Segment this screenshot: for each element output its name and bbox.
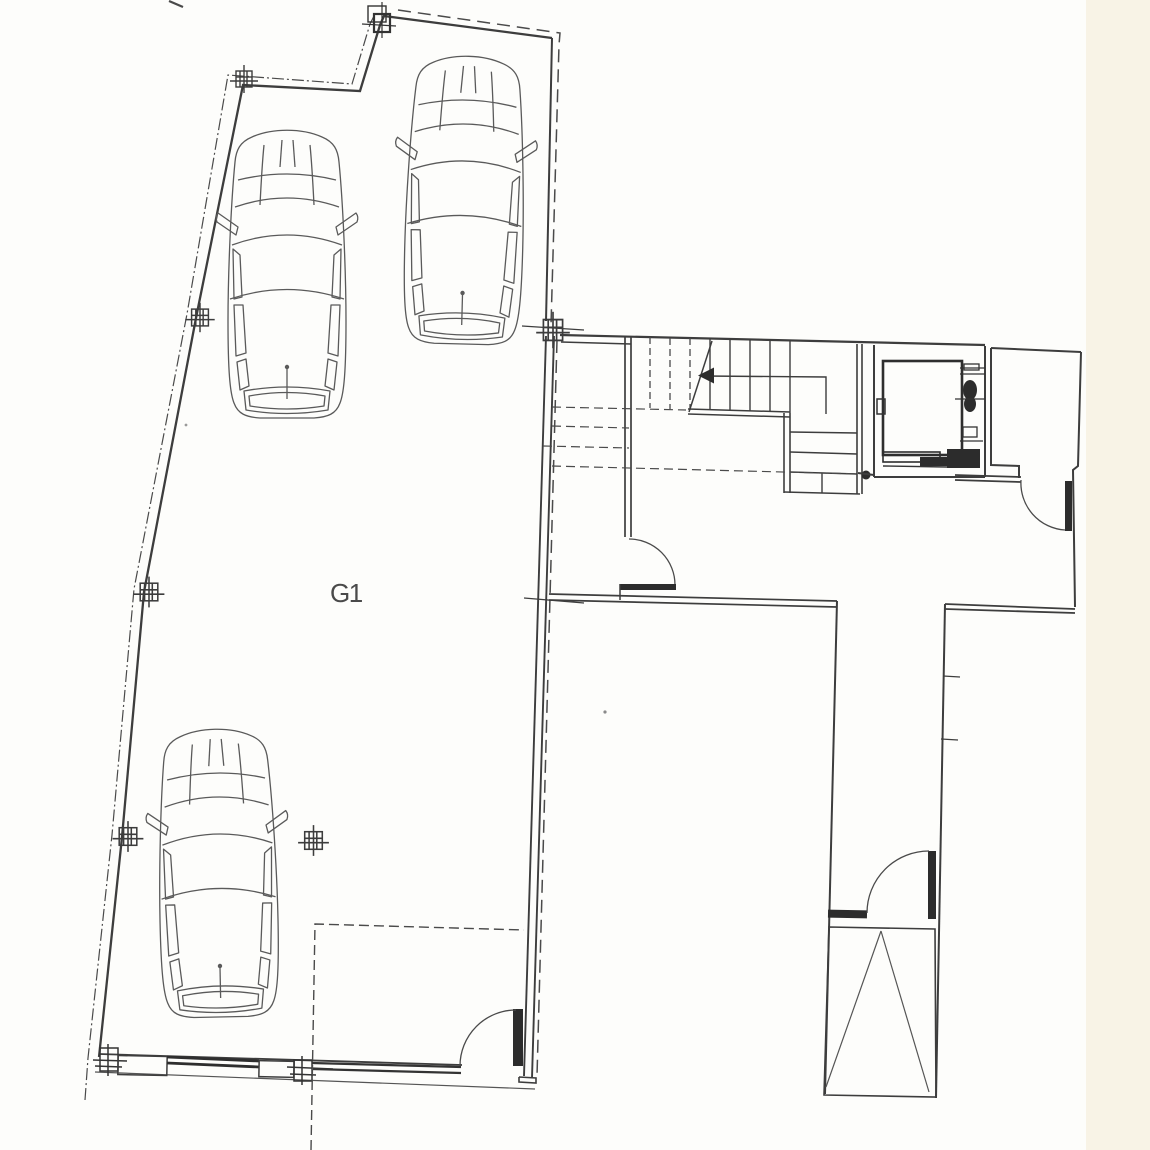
svg-text:G1: G1: [330, 578, 363, 608]
